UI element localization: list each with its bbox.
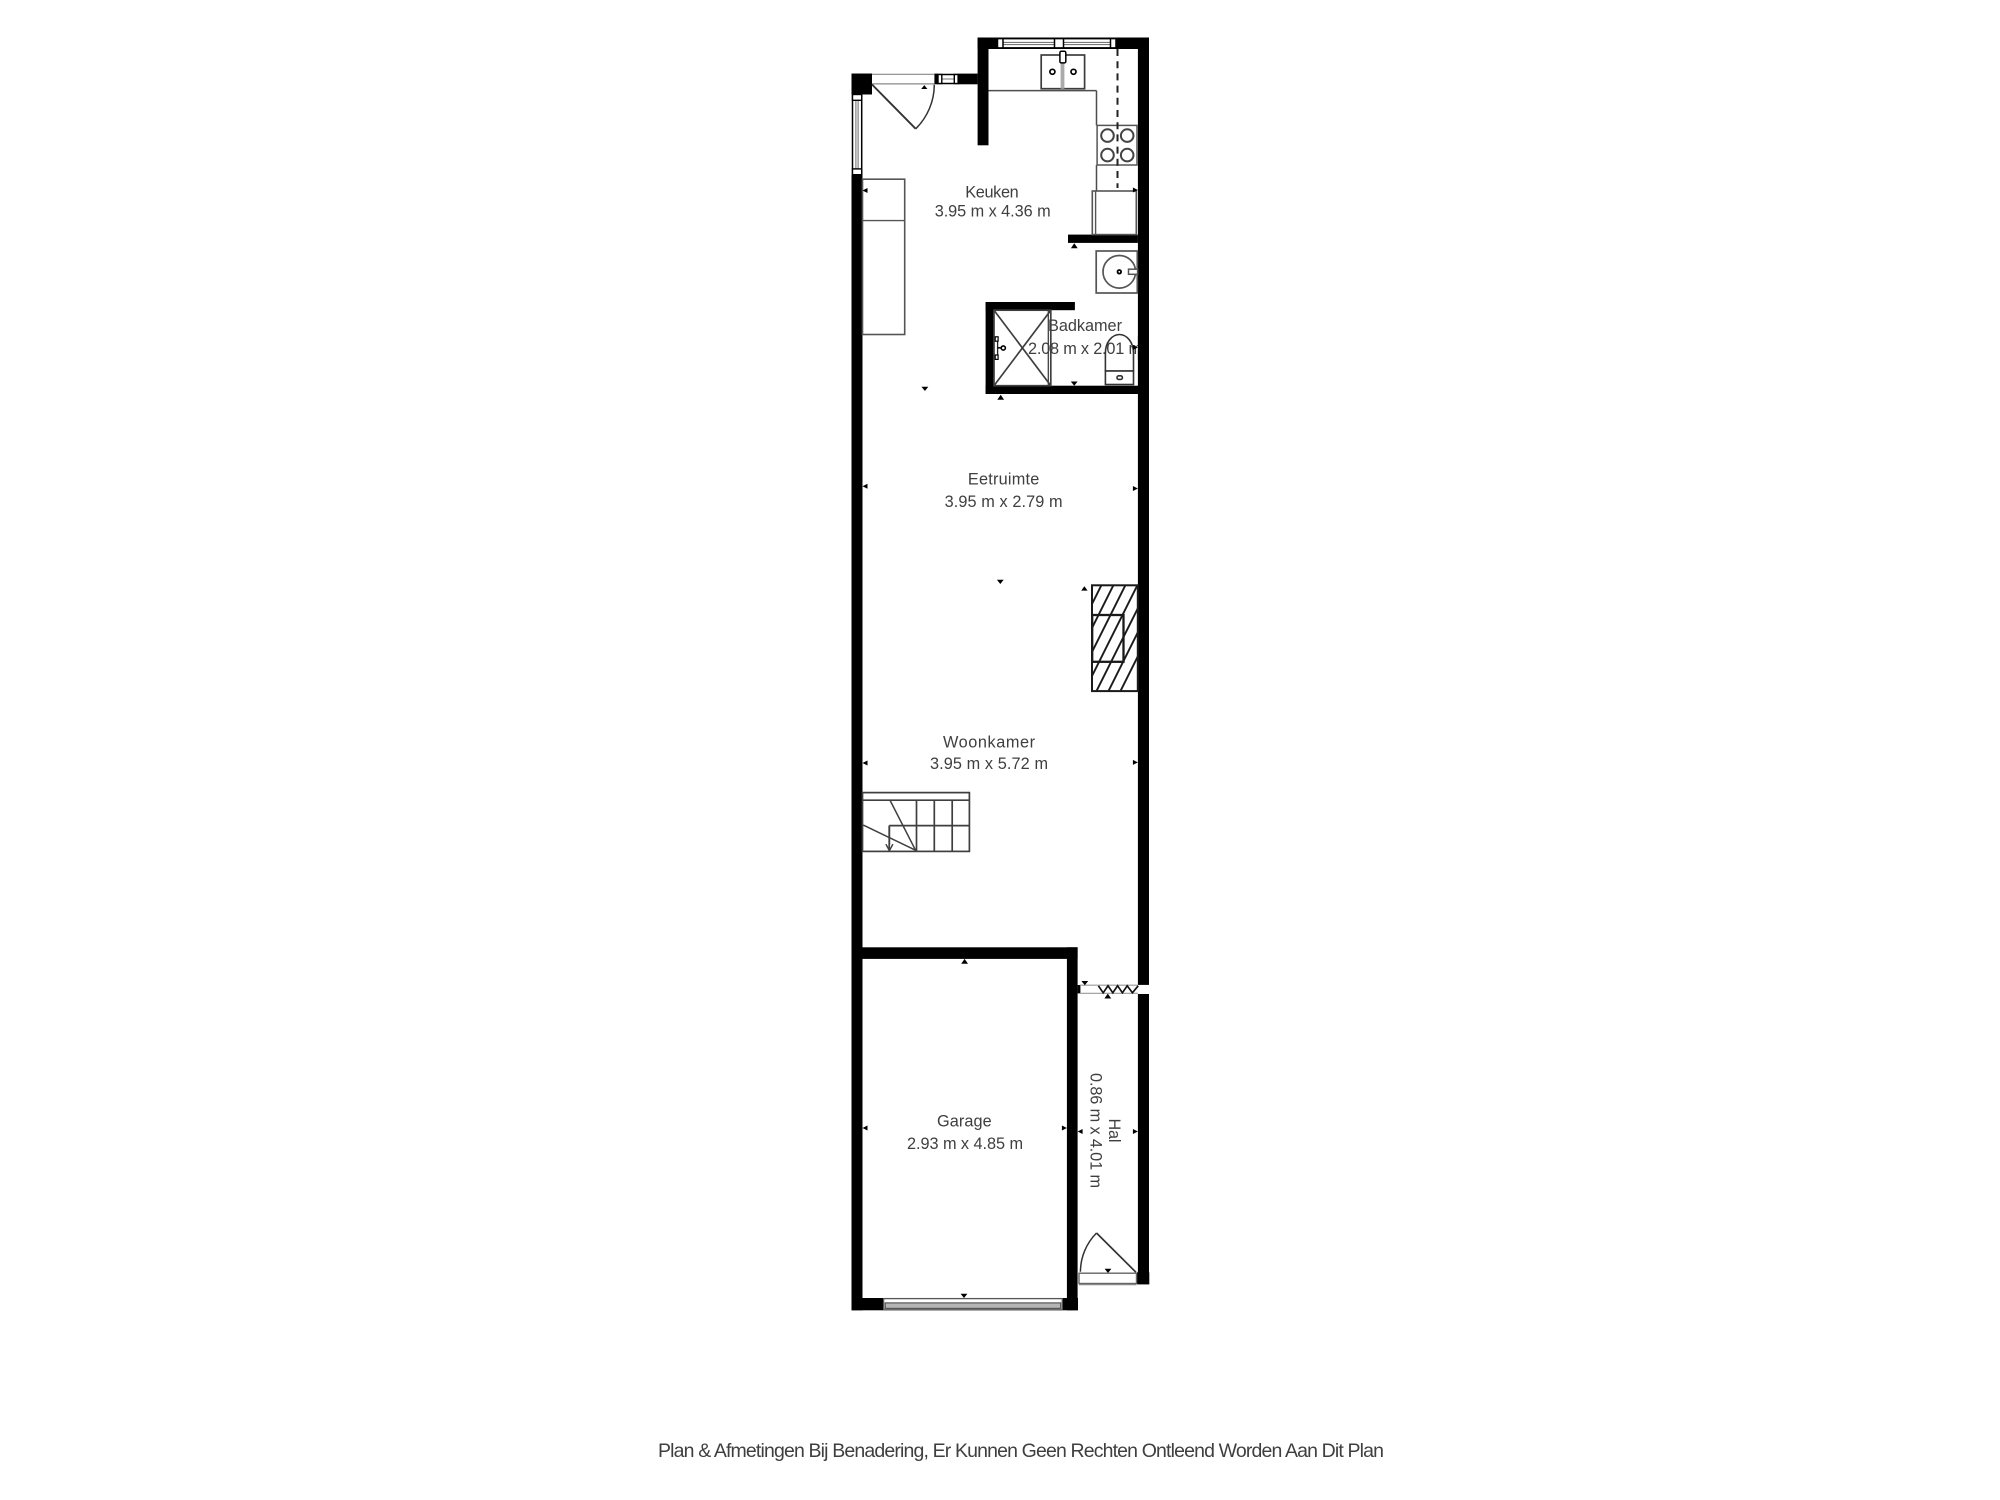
svg-text:Garage: Garage: [937, 1112, 992, 1130]
svg-text:Badkamer: Badkamer: [1048, 317, 1123, 335]
svg-text:2.08 m x 2.01 m: 2.08 m x 2.01 m: [1028, 340, 1142, 358]
svg-text:Plan & Afmetingen Bij Benaderi: Plan & Afmetingen Bij Benadering, Er Kun…: [658, 1440, 1384, 1462]
svg-text:Keuken: Keuken: [965, 184, 1018, 202]
svg-text:3.95 m x 2.79 m: 3.95 m x 2.79 m: [945, 493, 1063, 511]
svg-text:Woonkamer: Woonkamer: [943, 733, 1036, 751]
svg-text:Eetruimte: Eetruimte: [968, 471, 1040, 489]
svg-text:Hal: Hal: [1105, 1119, 1123, 1143]
svg-text:0.86 m x 4.01 m: 0.86 m x 4.01 m: [1087, 1073, 1105, 1188]
svg-text:2.93 m x 4.85 m: 2.93 m x 4.85 m: [907, 1135, 1023, 1153]
svg-text:3.95 m x 5.72 m: 3.95 m x 5.72 m: [930, 755, 1048, 773]
svg-text:3.95 m x 4.36 m: 3.95 m x 4.36 m: [935, 202, 1051, 220]
